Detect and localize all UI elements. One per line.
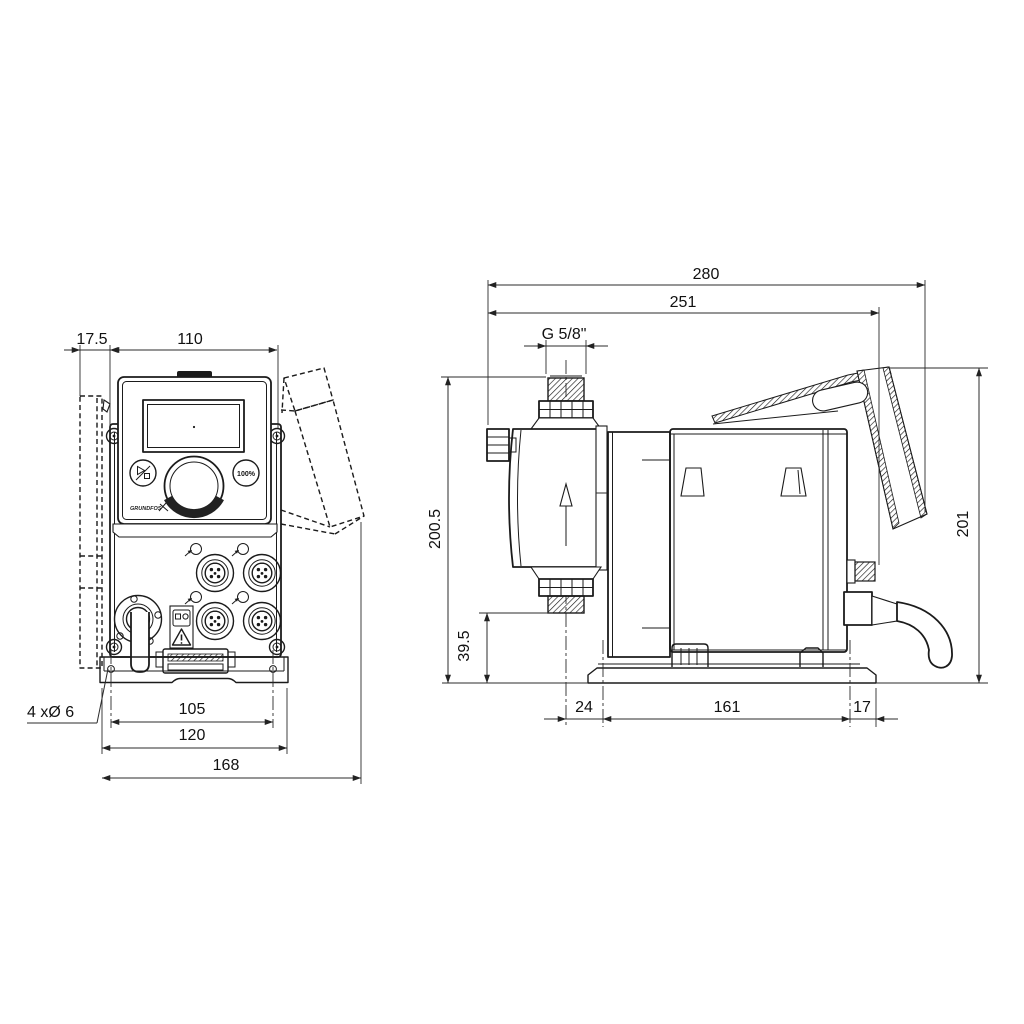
dosing-pump-dimensional-drawing: 100% GRUNDFOS bbox=[0, 0, 1024, 1024]
grip-slot bbox=[681, 468, 704, 496]
rear-connector bbox=[847, 560, 875, 583]
dim-overall-depth: 280 bbox=[693, 266, 720, 283]
dim-overall-height: 201 bbox=[955, 511, 972, 538]
outlet-nut bbox=[539, 579, 593, 596]
dim-hole-spacing-side: 161 bbox=[714, 699, 741, 716]
outlet-thread bbox=[548, 596, 584, 613]
dim-front-to-hole: 24 bbox=[575, 699, 593, 716]
dim-plate-width: 120 bbox=[179, 727, 206, 744]
m12-connector[interactable] bbox=[197, 603, 234, 640]
capacity-100-label: 100% bbox=[237, 471, 256, 478]
signal-icon bbox=[232, 544, 249, 557]
inlet-nut bbox=[539, 401, 593, 418]
motor-housing bbox=[670, 429, 847, 652]
dim-hole-to-rear: 17 bbox=[853, 699, 871, 716]
signal-icon bbox=[185, 544, 202, 557]
technical-drawing-page: 100% GRUNDFOS bbox=[0, 0, 1024, 1024]
m12-connector[interactable] bbox=[244, 603, 281, 640]
cable-gland bbox=[844, 592, 897, 625]
connection-thread-label: G 5/8" bbox=[542, 326, 587, 343]
hood-open-dashed bbox=[281, 368, 364, 534]
side-view: 280 251 G 5/8" 200.5 39.5 201 bbox=[427, 266, 988, 727]
wall-bracket-dashed bbox=[80, 396, 102, 668]
hood-side bbox=[712, 367, 927, 529]
warning-label bbox=[170, 606, 193, 648]
signal-icon bbox=[232, 592, 249, 605]
svg-text:GRUNDFOS: GRUNDFOS bbox=[130, 506, 162, 512]
head-body bbox=[509, 429, 598, 567]
control-panel: 100% GRUNDFOS bbox=[118, 371, 271, 524]
dim-depth-to-hood: 251 bbox=[670, 294, 697, 311]
dim-housing-width: 110 bbox=[177, 331, 203, 348]
head-mount-plate bbox=[596, 426, 607, 570]
drain-tube bbox=[131, 612, 149, 672]
power-cable bbox=[897, 602, 952, 668]
hinge-lug bbox=[103, 400, 110, 412]
mounting-rail bbox=[156, 649, 235, 673]
front-view: 100% GRUNDFOS bbox=[27, 331, 364, 784]
grip-slot bbox=[781, 468, 806, 496]
mounting-holes-label: 4 xØ 6 bbox=[27, 704, 74, 721]
inlet-thread bbox=[548, 378, 584, 401]
m12-connector[interactable] bbox=[244, 555, 281, 592]
panel-lip bbox=[113, 524, 277, 537]
dim-hole-spacing: 105 bbox=[179, 701, 206, 718]
dim-bracket-offset: 17.5 bbox=[76, 331, 107, 348]
dim-overall-width: 168 bbox=[213, 757, 240, 774]
dim-outlet-height: 39.5 bbox=[456, 630, 473, 661]
signal-icon bbox=[185, 592, 202, 605]
dosing-head bbox=[487, 376, 614, 613]
dim-height-inlet: 200.5 bbox=[427, 509, 444, 549]
m12-connector[interactable] bbox=[197, 555, 234, 592]
mounting-holes-callout: 4 xØ 6 bbox=[27, 669, 108, 723]
adapter-section bbox=[608, 432, 670, 657]
